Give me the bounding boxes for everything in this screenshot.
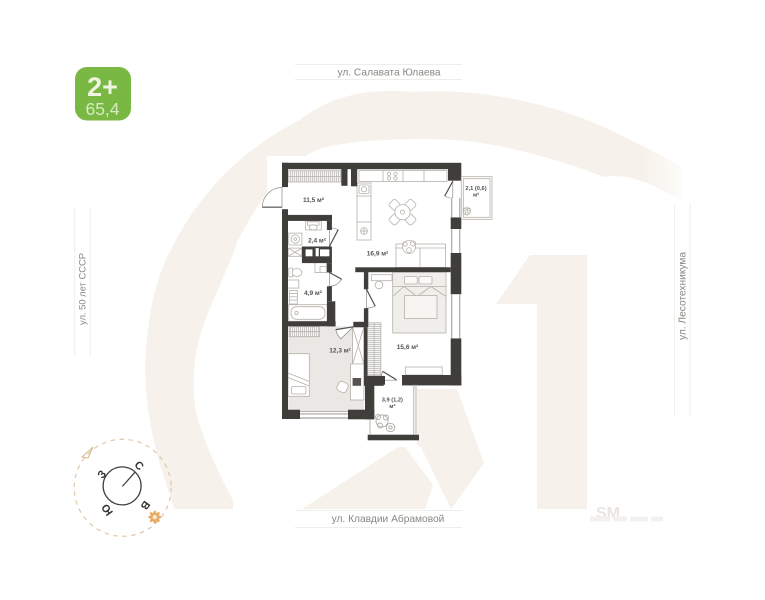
svg-text:65,4: 65,4 [85, 99, 119, 119]
svg-text:2+: 2+ [87, 72, 118, 102]
svg-text:16,9 м²: 16,9 м² [367, 250, 389, 257]
svg-text:ул. Лесотехникума: ул. Лесотехникума [678, 252, 689, 340]
svg-text:4,9 м²: 4,9 м² [304, 290, 323, 297]
svg-text:3,9 (1,2): 3,9 (1,2) [382, 398, 403, 404]
svg-text:11,5 м²: 11,5 м² [303, 197, 325, 204]
svg-text:ул. Клавдии Абрамовой: ул. Клавдии Абрамовой [332, 513, 445, 525]
svg-text:м²: м² [473, 191, 479, 198]
svg-text:2,1 (0,6): 2,1 (0,6) [465, 186, 486, 192]
svg-text:м²: м² [389, 403, 395, 410]
svg-text:12,3 м²: 12,3 м² [329, 348, 351, 355]
svg-text:15,6 м²: 15,6 м² [397, 344, 419, 351]
svg-text:2,4 м²: 2,4 м² [308, 237, 327, 244]
svg-text:ул. 50 лет СССР: ул. 50 лет СССР [77, 253, 88, 325]
svg-text:ул. Салавата Юлаева: ул. Салавата Юлаева [337, 68, 440, 79]
